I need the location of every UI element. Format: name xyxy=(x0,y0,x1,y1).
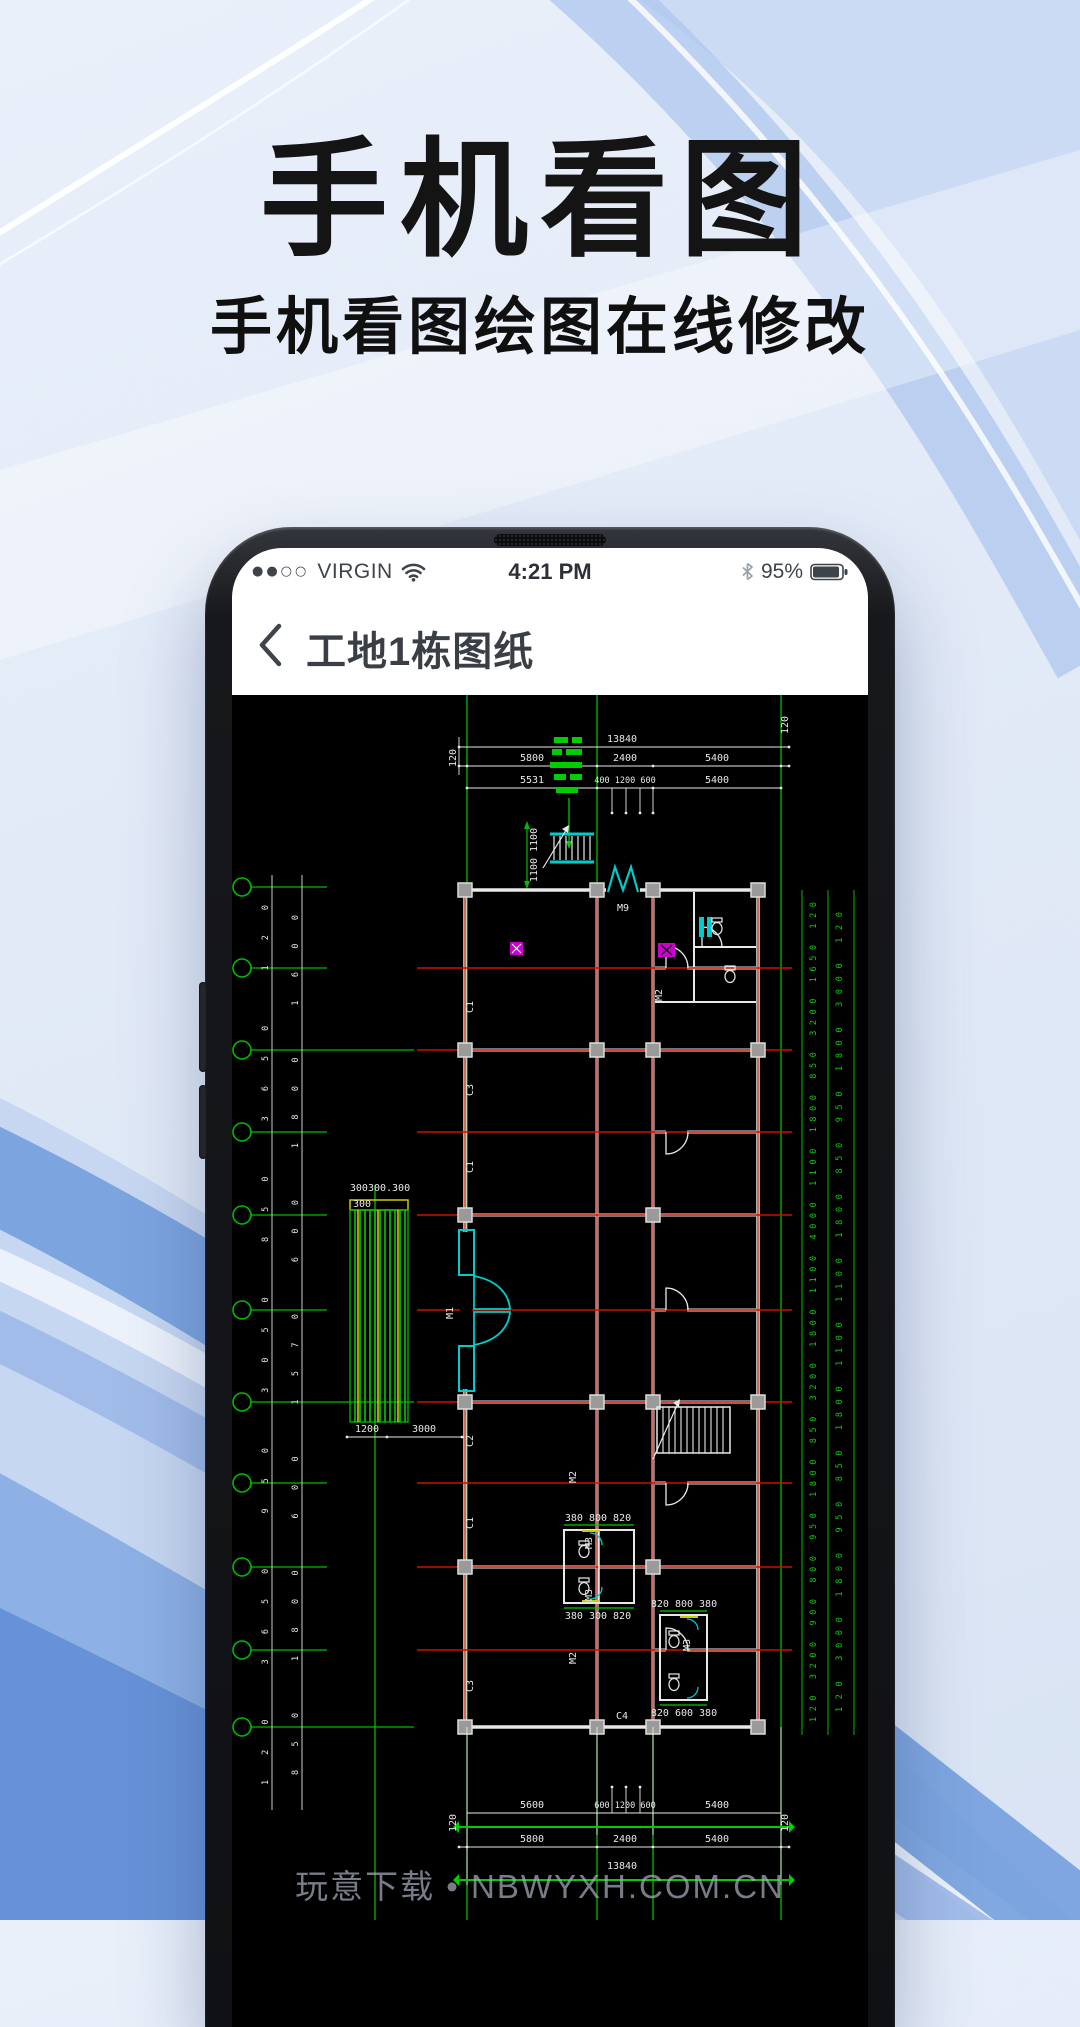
dim-top-120l: 120 xyxy=(448,749,459,767)
dims-right-col1: 120 3200 900 800 950 1800 850 3200 1800 … xyxy=(809,902,819,1722)
site-watermark: 玩意下载 • NBWYXH.COM.CN xyxy=(295,1860,785,1908)
staircase-top: 1100 1100 xyxy=(524,821,594,889)
axis-lines-red xyxy=(417,895,792,1725)
dim-bot-5400b: 5400 xyxy=(705,1834,729,1845)
dim-bath-right-bottom: 820 600 380 xyxy=(651,1708,717,1719)
door-m3-label: M3 xyxy=(682,1639,693,1651)
phone-mockup: ●●○○ VIRGIN 4:21 PM 95% xyxy=(205,527,895,2027)
drawing-title: 工地1栋图纸 xyxy=(306,619,534,677)
dim-top-sub: 400 1200 600 xyxy=(594,776,655,786)
dim-porch-top: 300300.300 xyxy=(350,1183,410,1194)
dim-top-total: 13840 xyxy=(607,734,637,745)
dim-porch-1200: 1200 xyxy=(355,1424,379,1435)
door-m9: M9 xyxy=(606,867,640,914)
axis-bubbles-left xyxy=(233,878,414,1736)
nav-bar: 工地1栋图纸 xyxy=(232,595,868,695)
dims-left-col2: 850 1800 600 1570 600 1800 1600 xyxy=(291,915,301,1775)
svg-text:C3: C3 xyxy=(465,1680,476,1692)
dim-top-120r: 120 xyxy=(780,716,791,734)
svg-text:C4: C4 xyxy=(616,1711,628,1722)
dim-bath-bottom: 380 300 820 xyxy=(565,1611,631,1622)
volume-up-button xyxy=(199,982,207,1072)
dim-top-5531: 5531 xyxy=(520,775,544,786)
svg-text:M2: M2 xyxy=(654,989,665,1001)
dim-top-5400b: 5400 xyxy=(705,775,729,786)
dim-bot-sub: 600 1200 600 xyxy=(594,1801,655,1811)
dim-bath-right-top: 820 800 380 xyxy=(651,1599,717,1610)
door-m3-label: M3 xyxy=(584,1589,595,1601)
dim-top-2400: 2400 xyxy=(613,753,637,764)
dim-top-5800: 5800 xyxy=(520,753,544,764)
grid-lines-green xyxy=(375,695,781,1920)
page-title: 手机看图 xyxy=(0,96,1080,281)
svg-text:C1: C1 xyxy=(465,1001,476,1013)
phone-screen: ●●○○ VIRGIN 4:21 PM 95% xyxy=(232,548,868,2027)
dim-bot-5400a: 5400 xyxy=(705,1800,729,1811)
status-bar: ●●○○ VIRGIN 4:21 PM 95% xyxy=(232,548,868,595)
dim-bot-5800: 5800 xyxy=(520,1834,544,1845)
speaker-grille xyxy=(494,534,606,546)
dimension-chain-right: 120 3200 900 800 950 1800 850 3200 1800 … xyxy=(802,890,854,1735)
dim-bot-2400: 2400 xyxy=(613,1834,637,1845)
dims-right-col2: 120 3000 1800 950 850 1800 1100 1100 180… xyxy=(835,912,845,1712)
svg-text:C3: C3 xyxy=(465,1084,476,1096)
svg-text:C1: C1 xyxy=(465,1161,476,1173)
svg-text:M2: M2 xyxy=(568,1652,579,1664)
battery-icon xyxy=(810,563,848,581)
dims-left-col1: 120 3650 950 3050 850 3650 120 xyxy=(261,905,271,1785)
dim-porch-300: 300 xyxy=(353,1199,371,1210)
page-subtitle: 手机看图绘图在线修改 xyxy=(0,276,1080,366)
dim-bot-120r: 120 xyxy=(780,1814,791,1832)
svg-text:M2: M2 xyxy=(568,1471,579,1483)
back-button[interactable] xyxy=(246,611,294,679)
svg-text:C1: C1 xyxy=(465,1517,476,1529)
door-m9-label: M9 xyxy=(617,903,629,914)
dim-porch-3000: 3000 xyxy=(412,1424,436,1435)
dimension-chain-left: 120 3650 950 3050 850 3650 120 850 1800 … xyxy=(261,875,302,1810)
dim-top-5400: 5400 xyxy=(705,753,729,764)
dim-bath-top: 380 800 820 xyxy=(565,1513,631,1524)
svg-text:C2: C2 xyxy=(465,1435,476,1447)
battery-percent-label: 95% xyxy=(761,560,803,584)
door-arcs xyxy=(666,927,722,1650)
dim-bot-5600: 5600 xyxy=(520,1800,544,1811)
door-m3-label: M3 xyxy=(584,1537,595,1549)
dim-bot-120l: 120 xyxy=(448,1814,459,1832)
chevron-left-icon xyxy=(255,621,285,669)
dim-stair: 1100 1100 xyxy=(529,828,540,882)
bathroom-right: 820 800 380 820 600 380 M3 xyxy=(651,1599,717,1719)
cad-viewport[interactable]: 120 3650 950 3050 850 3650 120 850 1800 … xyxy=(232,695,868,2027)
door-m1-label: M1 xyxy=(445,1307,456,1319)
magenta-fixtures xyxy=(510,942,675,957)
volume-down-button xyxy=(199,1085,207,1159)
dimensions-top: 13840 120 5800 2400 5400 120 5531 400 12… xyxy=(448,716,791,814)
bluetooth-icon xyxy=(741,562,754,581)
staircase-middle xyxy=(653,1399,730,1459)
